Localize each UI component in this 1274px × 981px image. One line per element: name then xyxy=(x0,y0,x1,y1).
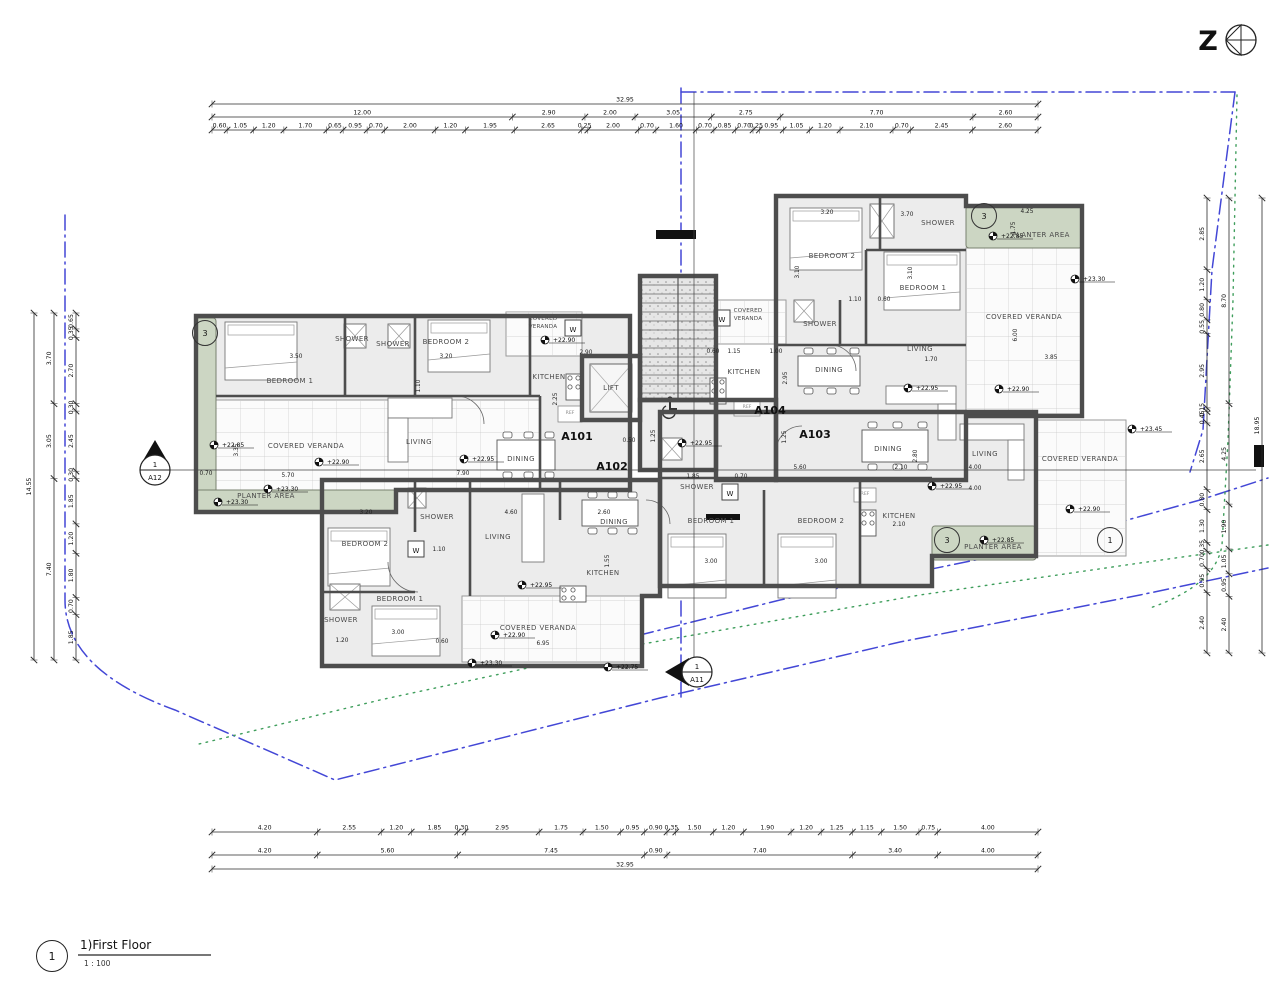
chair xyxy=(588,528,597,534)
room-label: LIVING xyxy=(972,450,998,458)
dimension-label: 2.80 xyxy=(913,449,919,462)
room-label: LIVING xyxy=(406,438,432,446)
chain-dimension: 7.40 xyxy=(46,562,53,576)
section-label: A11 xyxy=(690,676,704,684)
chain-dimension: 0.55 xyxy=(1199,320,1206,334)
drawing-number: 1 xyxy=(49,950,56,963)
room-label: PLANTER AREA xyxy=(964,543,1022,551)
chain-dimension: 1.20 xyxy=(262,123,276,130)
chain-dimension: 1.90 xyxy=(760,825,774,832)
room-label: BEDROOM 2 xyxy=(342,540,389,548)
elevation-label: +23.30 xyxy=(276,486,298,493)
chain-dimension: 4.00 xyxy=(981,825,995,832)
dimension-label: 1.15 xyxy=(728,349,741,355)
washer-letter: W xyxy=(719,316,726,324)
chain-dimension: 0.95 xyxy=(1221,578,1228,592)
chair xyxy=(545,472,554,478)
chain-dimension: 0.95 xyxy=(764,123,778,130)
chain-dimension: 3.40 xyxy=(888,848,902,855)
elevation-label: +22.95 xyxy=(916,385,938,392)
room-label: SHOWER xyxy=(921,219,955,227)
dimension-label: 4.60 xyxy=(505,510,518,516)
bed xyxy=(328,528,390,586)
chain-dimension: 1.20 xyxy=(1199,278,1206,292)
ref-label: REF xyxy=(566,410,575,416)
chain-dimension: 0.70 xyxy=(369,123,383,130)
chain-dimension: 2.60 xyxy=(999,110,1013,117)
chain-dimension: 2.95 xyxy=(1199,364,1206,378)
chain-dimension: 12.00 xyxy=(353,110,371,117)
chain-dimension: 2.00 xyxy=(403,123,417,130)
room-label: DINING xyxy=(600,518,628,526)
chair xyxy=(868,422,877,428)
title-block: 1 1)First Floor 1 : 100 xyxy=(36,938,211,972)
chain-dimension: 0.65 xyxy=(68,314,75,328)
dimension-label: 5.60 xyxy=(794,465,807,471)
room-label: COVERED xyxy=(734,308,763,314)
drawing-scale: 1 : 100 xyxy=(78,956,211,968)
washer-letter: W xyxy=(727,490,734,498)
dimension-label: 2.90 xyxy=(580,350,593,356)
dimension-label: 1.25 xyxy=(782,430,788,443)
room-label: DINING xyxy=(507,455,535,463)
unit-label: A104 xyxy=(754,404,786,417)
dimension-chain-bottom: 4.202.551.201.850.302.951.751.500.950.90… xyxy=(209,825,1041,873)
elevation-label: +22.75 xyxy=(616,664,638,671)
room-label: SHOWER xyxy=(680,483,714,491)
elevation-label: +22.90 xyxy=(553,337,575,344)
chain-dimension: 2.65 xyxy=(1199,449,1206,463)
room-label: BEDROOM 2 xyxy=(423,338,470,346)
chain-dimension: 1.85 xyxy=(68,630,75,644)
floor-plan-sheet: WWWWBEDROOM 1SHOWERSHOWERBEDROOM 2KITCHE… xyxy=(0,0,1274,981)
elevation-label: +23.45 xyxy=(1140,426,1162,433)
dimension-label: 2.25 xyxy=(553,392,559,405)
dimension-label: 6.00 xyxy=(1013,328,1019,341)
chain-dimension: 1.20 xyxy=(818,123,832,130)
chain-dimension: 0.70 xyxy=(640,123,654,130)
chain-dimension: 32.95 xyxy=(616,862,634,869)
chain-dimension: 1.50 xyxy=(893,825,907,832)
chain-dimension: 0.25 xyxy=(578,123,592,130)
room-label: BEDROOM 2 xyxy=(809,252,856,260)
chain-dimension: 1.05 xyxy=(1221,554,1228,568)
room-label: LIVING xyxy=(907,345,933,353)
dimension-label: 1.20 xyxy=(336,638,349,644)
elevation-label: +22.90 xyxy=(503,632,525,639)
dimension-label: 0.70 xyxy=(735,474,748,480)
chain-dimension: 0.70 xyxy=(1199,553,1206,567)
chain-dimension: 2.75 xyxy=(739,110,753,117)
room-label: SHOWER xyxy=(803,320,837,328)
chain-dimension: 2.65 xyxy=(541,123,555,130)
dimension-label: 4.00 xyxy=(969,465,982,471)
chain-dimension: 1.90 xyxy=(1221,520,1228,534)
bed xyxy=(884,252,960,310)
room-label: COVERED VERANDA xyxy=(986,313,1062,321)
chair xyxy=(868,464,877,470)
unit-label: A101 xyxy=(561,430,592,443)
chain-dimension: 1.25 xyxy=(830,825,844,832)
chain-dimension: 2.45 xyxy=(935,123,949,130)
drawing-number-bubble: 1 xyxy=(36,940,68,972)
chain-dimension: 1.75 xyxy=(554,825,568,832)
room-label: COVERED VERANDA xyxy=(268,442,344,450)
chain-dimension: 0.25 xyxy=(749,123,763,130)
room-label: KITCHEN xyxy=(727,368,760,376)
dimension-label: 3.20 xyxy=(360,510,373,516)
chain-dimension: 2.40 xyxy=(1199,616,1206,630)
dimension-label: 1.00 xyxy=(770,349,783,355)
chain-dimension: 1.05 xyxy=(790,123,804,130)
section-number: 1 xyxy=(153,461,157,469)
chain-dimension: 2.00 xyxy=(603,110,617,117)
room-label: DINING xyxy=(815,366,843,374)
unit-label: A103 xyxy=(799,428,830,441)
section-number: 1 xyxy=(695,663,699,671)
chain-dimension: 3.70 xyxy=(46,351,53,365)
dimension-label: 3.10 xyxy=(908,266,914,279)
chain-dimension: 2.45 xyxy=(68,434,75,448)
floor-plan-drawing: WWWWBEDROOM 1SHOWERSHOWERBEDROOM 2KITCHE… xyxy=(0,0,1274,981)
sofa xyxy=(960,424,1024,440)
chair xyxy=(850,348,859,354)
north-arrow: Z xyxy=(1198,25,1256,57)
north-letter: Z xyxy=(1198,26,1218,57)
room-label: BEDROOM 1 xyxy=(900,284,947,292)
dimension-chain-top: 32.9512.002.902.003.052.757.702.600.601.… xyxy=(209,97,1041,134)
chain-dimension: 0.70 xyxy=(895,123,909,130)
dimension-label: 1.10 xyxy=(416,379,422,392)
stove xyxy=(860,510,876,536)
chain-dimension: 0.65 xyxy=(328,123,342,130)
chain-dimension: 4.20 xyxy=(258,848,272,855)
drawing-title: 1)First Floor xyxy=(78,938,211,956)
stove xyxy=(566,374,582,400)
chain-dimension: 2.60 xyxy=(998,123,1012,130)
dimension-label: 1.10 xyxy=(849,297,862,303)
dimension-label: 4.25 xyxy=(1021,209,1034,215)
chain-dimension: 1.30 xyxy=(1199,519,1206,533)
chain-dimension: 0.90 xyxy=(649,848,663,855)
dimension-label: 0.50 xyxy=(623,438,636,444)
room-label: VERANDA xyxy=(734,316,762,322)
room-label: SHOWER xyxy=(324,616,358,624)
dimension-label: 0.60 xyxy=(707,349,720,355)
chain-dimension: 2.90 xyxy=(542,110,556,117)
chain-dimension: 0.95 xyxy=(348,123,362,130)
ref-label: REF xyxy=(743,404,752,410)
elevation-label: +22.95 xyxy=(472,456,494,463)
dimension-label: 3.70 xyxy=(901,212,914,218)
chain-dimension: 0.60 xyxy=(213,123,227,130)
dimension-label: 7.90 xyxy=(457,471,470,477)
dimension-label: 1.10 xyxy=(433,547,446,553)
chain-dimension: 1.50 xyxy=(688,825,702,832)
chain-dimension: 2.40 xyxy=(1221,618,1228,632)
chain-dimension: 0.80 xyxy=(1199,303,1206,317)
room-label: VERANDA xyxy=(529,324,557,330)
chain-dimension: 2.95 xyxy=(495,825,509,832)
bed xyxy=(428,320,490,372)
chain-dimension: 0.35 xyxy=(68,326,75,340)
section-label: A12 xyxy=(148,474,162,482)
planter-area xyxy=(196,318,216,512)
elevation-label: +23.30 xyxy=(226,499,248,506)
dimension-label: 6.95 xyxy=(537,641,550,647)
chain-dimension: 0.70 xyxy=(698,123,712,130)
chair xyxy=(524,472,533,478)
elevation-label: +22.95 xyxy=(530,582,552,589)
dimension-label: 0.60 xyxy=(878,297,891,303)
chain-dimension: 1.85 xyxy=(428,825,442,832)
chair xyxy=(503,472,512,478)
ref-label: REF xyxy=(861,491,870,497)
chain-dimension: 0.85 xyxy=(718,123,732,130)
room-label: KITCHEN xyxy=(586,569,619,577)
sofa xyxy=(388,398,452,418)
chair xyxy=(608,528,617,534)
chain-dimension: 1.20 xyxy=(722,825,736,832)
chain-dimension: 0.95 xyxy=(626,825,640,832)
detail-number: 3 xyxy=(981,212,986,221)
chain-dimension: 0.35 xyxy=(1199,540,1206,554)
bed xyxy=(668,534,726,598)
elevation-label: +23.30 xyxy=(1083,276,1105,283)
dimension-label: 3.20 xyxy=(821,210,834,216)
stove xyxy=(560,586,586,602)
room-label: LIVING xyxy=(485,533,511,541)
elevation-label: +22.95 xyxy=(690,440,712,447)
dimension-label: 1.70 xyxy=(925,357,938,363)
washer-letter: W xyxy=(413,547,420,555)
sofa xyxy=(1008,440,1024,480)
title-text: 1)First Floor 1 : 100 xyxy=(78,938,211,968)
chain-dimension: 8.70 xyxy=(1221,294,1228,308)
chair xyxy=(893,422,902,428)
chain-dimension: 1.20 xyxy=(443,123,457,130)
chair xyxy=(804,388,813,394)
chair xyxy=(804,348,813,354)
chain-dimension: 2.00 xyxy=(606,123,620,130)
room-label: BEDROOM 1 xyxy=(688,517,735,525)
chair xyxy=(588,492,597,498)
room-label: KITCHEN xyxy=(882,512,915,520)
chain-dimension: 3.05 xyxy=(46,434,53,448)
chain-dimension: 1.85 xyxy=(68,494,75,508)
dimension-label: 3.10 xyxy=(795,265,801,278)
chain-dimension: 0.75 xyxy=(921,825,935,832)
chain-dimension: 7.70 xyxy=(870,110,884,117)
dimension-label: 2.10 xyxy=(895,465,908,471)
elevation-label: +22.85 xyxy=(992,537,1014,544)
chain-dimension: 0.30 xyxy=(68,468,75,482)
room-label: SHOWER xyxy=(335,335,369,343)
dimension-label: 3.85 xyxy=(1045,355,1058,361)
dimension-label: 3.00 xyxy=(392,630,405,636)
room-label: COVERED xyxy=(529,316,558,322)
chain-dimension: 2.70 xyxy=(68,364,75,378)
chain-dimension: 3.05 xyxy=(666,110,680,117)
elevation-label: +22.90 xyxy=(327,459,349,466)
unit-label: A102 xyxy=(596,460,627,473)
room-label: LIFT xyxy=(603,384,619,392)
dimension-label: 3.00 xyxy=(815,559,828,565)
room-label: BEDROOM 2 xyxy=(798,517,845,525)
chain-dimension: 4.20 xyxy=(258,825,272,832)
room-label: COVERED VERANDA xyxy=(500,624,576,632)
chain-dimension: 1.95 xyxy=(483,123,497,130)
chair xyxy=(827,388,836,394)
washer-letter: W xyxy=(570,326,577,334)
elevation-label: +23.30 xyxy=(480,660,502,667)
bed xyxy=(225,322,297,380)
dimension-label: 2.10 xyxy=(893,522,906,528)
chain-dimension: 5.60 xyxy=(381,848,395,855)
bed xyxy=(778,534,836,598)
chain-dimension: 1.60 xyxy=(669,123,683,130)
chain-dimension: 1.70 xyxy=(298,123,312,130)
chain-dimension: 2.85 xyxy=(1199,227,1206,241)
room-label: DINING xyxy=(874,445,902,453)
elevation-label: +22.85 xyxy=(222,442,244,449)
chair xyxy=(918,464,927,470)
chair xyxy=(827,348,836,354)
bed xyxy=(372,606,440,656)
dimension-label: 2.60 xyxy=(598,510,611,516)
sofa xyxy=(938,404,956,440)
elevation-label: +22.90 xyxy=(1078,506,1100,513)
dimension-label: 2.95 xyxy=(783,371,789,384)
chair xyxy=(918,422,927,428)
chain-dimension: 1.80 xyxy=(68,568,75,582)
chair xyxy=(524,432,533,438)
elevation-label: +22.95 xyxy=(940,483,962,490)
sofa xyxy=(522,494,544,562)
chain-dimension: 0.95 xyxy=(1199,574,1206,588)
chair xyxy=(850,388,859,394)
chain-dimension: 0.70 xyxy=(68,599,75,613)
detail-number: 3 xyxy=(202,329,207,338)
dimension-chain-left: 14.553.703.057.400.650.352.700.302.450.3… xyxy=(26,310,80,663)
dimension-label: 1.25 xyxy=(651,429,657,442)
room-label: COVERED VERANDA xyxy=(1042,455,1118,463)
room-label: SHOWER xyxy=(376,340,410,348)
chain-dimension: 0.30 xyxy=(455,825,469,832)
bed xyxy=(790,208,862,270)
chain-dimension: 1.05 xyxy=(233,123,247,130)
dimension-label: 3.50 xyxy=(290,354,303,360)
chain-dimension: 7.45 xyxy=(544,848,558,855)
dimension-label: 3.00 xyxy=(705,559,718,565)
room-label: SHOWER xyxy=(420,513,454,521)
dimension-label: 0.60 xyxy=(436,639,449,645)
chair xyxy=(628,528,637,534)
room-label: BEDROOM 1 xyxy=(377,595,424,603)
chair xyxy=(503,432,512,438)
dimension-label: 1.85 xyxy=(687,474,700,480)
detail-number: 3 xyxy=(944,536,949,545)
chair xyxy=(608,492,617,498)
chain-dimension: 0.30 xyxy=(68,400,75,414)
chain-dimension: 0.80 xyxy=(1199,493,1206,507)
chain-dimension: 1.20 xyxy=(389,825,403,832)
detail-number: 1 xyxy=(1107,536,1112,545)
chair xyxy=(628,492,637,498)
elevation-label: +22.90 xyxy=(1007,386,1029,393)
dimension-chain-right: 18.958.704.251.901.050.952.402.851.200.8… xyxy=(1199,195,1266,656)
chair xyxy=(545,432,554,438)
room-label: BEDROOM 1 xyxy=(267,377,314,385)
chain-dimension: 18.95 xyxy=(1254,417,1261,435)
chain-dimension: 4.25 xyxy=(1221,447,1228,461)
dimension-label: 3.20 xyxy=(440,354,453,360)
chain-dimension: 2.55 xyxy=(342,825,356,832)
chain-dimension: 1.20 xyxy=(68,532,75,546)
chain-dimension: 0.35 xyxy=(664,825,678,832)
dimension-label: 5.70 xyxy=(282,473,295,479)
chain-dimension: 0.90 xyxy=(649,825,663,832)
chain-dimension: 0.45 xyxy=(1199,410,1206,424)
dimension-label: 1.55 xyxy=(605,554,611,567)
chain-dimension: 14.55 xyxy=(26,478,33,496)
elevation-label: +22.85 xyxy=(1001,233,1023,240)
chain-dimension: 1.15 xyxy=(860,825,874,832)
chain-dimension: 4.00 xyxy=(981,848,995,855)
chain-dimension: 1.20 xyxy=(799,825,813,832)
room-label: KITCHEN xyxy=(532,373,565,381)
dimension-label: 0.70 xyxy=(200,471,213,477)
chain-dimension: 7.40 xyxy=(753,848,767,855)
sofa xyxy=(388,418,408,462)
chain-dimension: 1.50 xyxy=(595,825,609,832)
chain-dimension: 32.95 xyxy=(616,97,634,104)
chain-dimension: 2.10 xyxy=(860,123,874,130)
